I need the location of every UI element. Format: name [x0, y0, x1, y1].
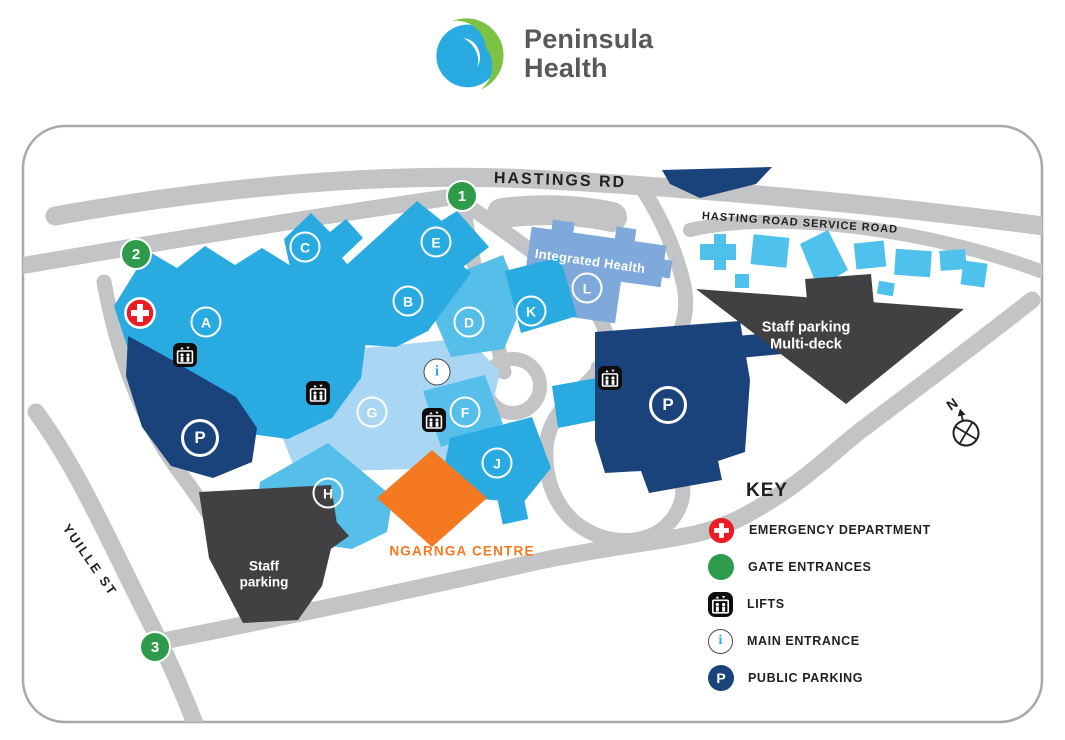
key-label: LIFTS: [747, 597, 785, 611]
badge-building-a: A: [191, 307, 222, 338]
key-row-lifts: LIFTS: [708, 589, 785, 619]
public-parking-icon: P: [708, 665, 734, 691]
gate-entrance-icon: [708, 554, 734, 580]
emergency-department-icon: [124, 297, 157, 330]
key-label: EMERGENCY DEPARTMENT: [749, 523, 931, 537]
label-staff-parking-multideck: Staff parking Multi-deck: [762, 319, 851, 352]
label-staff-parking: Staff parking: [240, 558, 289, 589]
emergency-cross-icon: [708, 517, 735, 544]
key-row-gates: GATE ENTRANCES: [708, 552, 871, 582]
key-label: MAIN ENTRANCE: [747, 634, 860, 648]
badge-building-f: F: [450, 397, 481, 428]
gate-1-badge: 1: [446, 180, 478, 212]
gate-2-badge: 2: [120, 238, 152, 270]
badge-building-b: B: [393, 286, 424, 317]
badge-building-k: K: [516, 296, 547, 327]
road-dropoff-loop: [502, 210, 612, 217]
campus-map-graphic: [0, 0, 1065, 740]
key-label: PUBLIC PARKING: [748, 671, 863, 685]
public-parking-badge: P: [649, 386, 687, 424]
badge-building-h: H: [313, 478, 344, 509]
lift-icon: [708, 592, 733, 617]
key-title: KEY: [746, 480, 788, 502]
public-parking-badge: P: [181, 419, 219, 457]
key-label: GATE ENTRANCES: [748, 560, 871, 574]
campus-map-page: Peninsula Health: [0, 0, 1065, 740]
key-row-emergency: EMERGENCY DEPARTMENT: [708, 515, 931, 545]
lift-icon: [173, 343, 197, 367]
lift-icon: [598, 366, 622, 390]
badge-building-c: C: [290, 232, 321, 263]
badge-building-g: G: [357, 397, 388, 428]
badge-building-l: L: [572, 273, 603, 304]
main-entrance-icon: i: [424, 359, 451, 386]
key-row-public-parking: P PUBLIC PARKING: [708, 663, 863, 693]
gate-3-badge: 3: [139, 631, 171, 663]
key-row-main-entrance: i MAIN ENTRANCE: [708, 626, 860, 656]
main-entrance-icon: i: [708, 629, 733, 654]
lift-icon: [306, 381, 330, 405]
label-ngarnga-centre: NGARNGA CENTRE: [389, 544, 534, 559]
badge-building-d: D: [454, 307, 485, 338]
lift-icon: [422, 408, 446, 432]
badge-building-j: J: [482, 448, 513, 479]
badge-building-e: E: [421, 227, 452, 258]
